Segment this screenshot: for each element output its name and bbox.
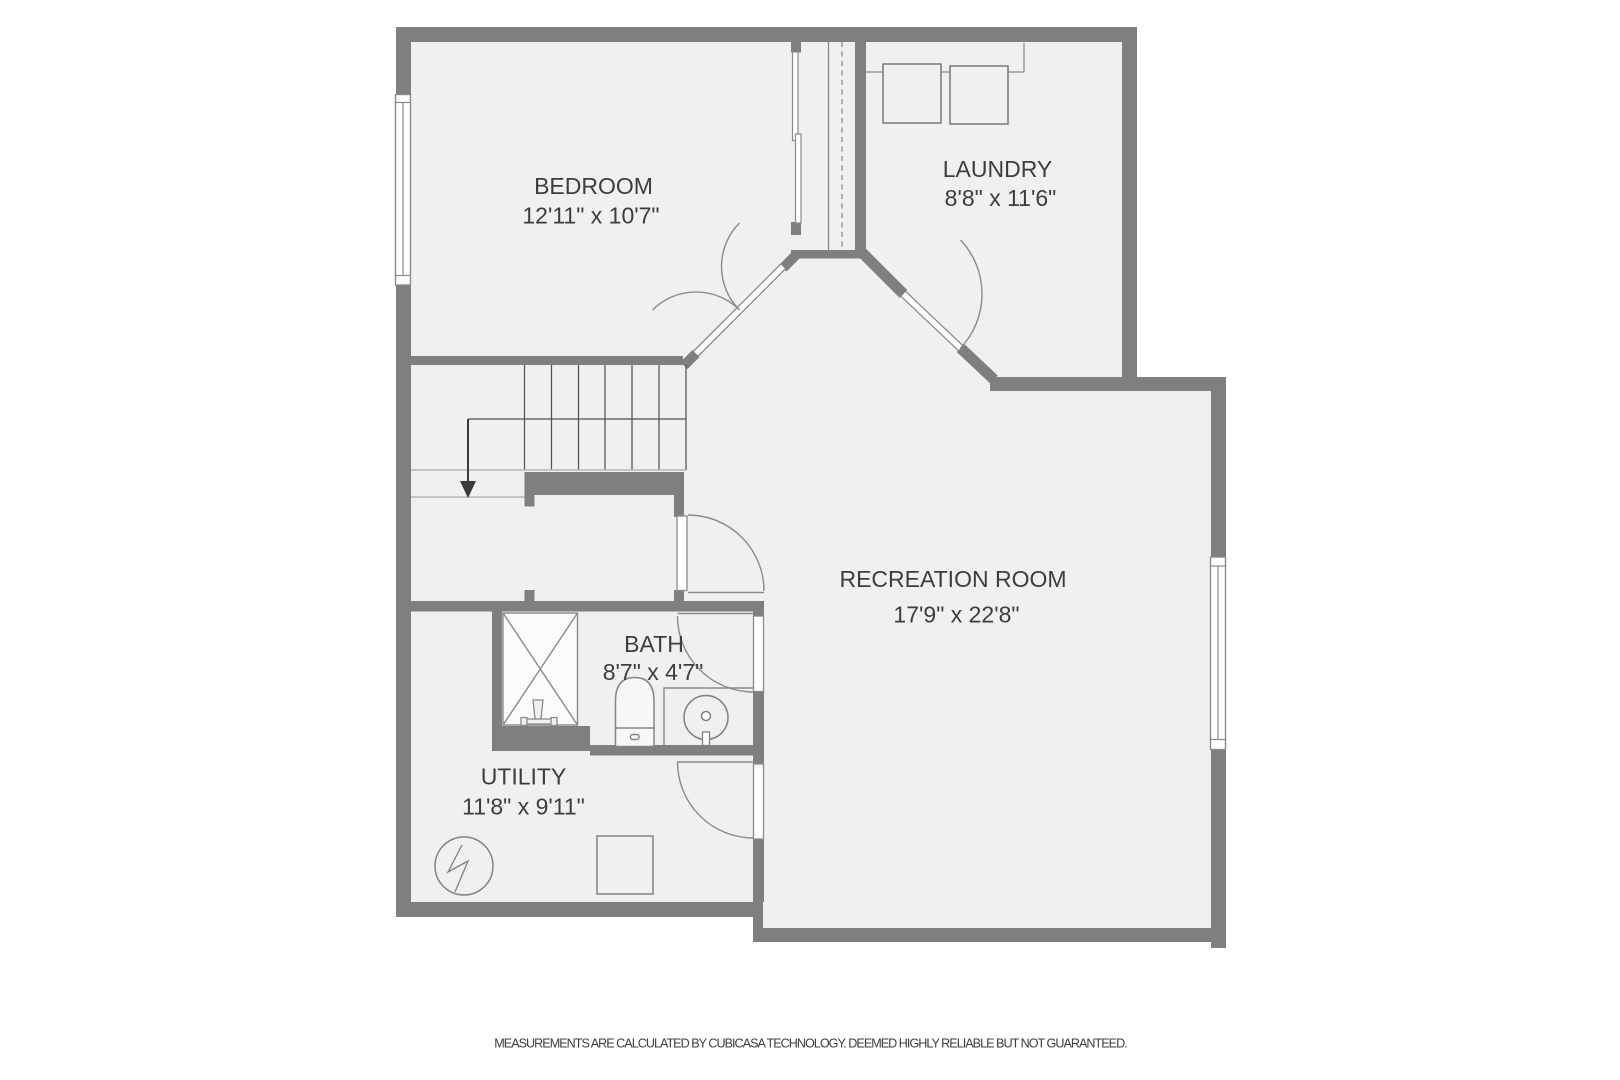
svg-text:8'8" x 11'6": 8'8" x 11'6" (945, 185, 1057, 211)
svg-text:BATH: BATH (624, 631, 684, 657)
svg-text:BEDROOM: BEDROOM (534, 173, 653, 199)
svg-text:8'7" x 4'7": 8'7" x 4'7" (603, 659, 704, 685)
svg-text:RECREATION ROOM: RECREATION ROOM (839, 566, 1066, 592)
svg-text:LAUNDRY: LAUNDRY (943, 156, 1053, 182)
svg-text:MEASUREMENTS ARE CALCULATED BY: MEASUREMENTS ARE CALCULATED BY CUBICASA … (494, 1037, 1127, 1051)
svg-text:UTILITY: UTILITY (481, 764, 567, 790)
svg-text:17'9" x 22'8": 17'9" x 22'8" (893, 602, 1019, 628)
svg-text:12'11" x 10'7": 12'11" x 10'7" (522, 203, 659, 229)
svg-text:11'8" x 9'11": 11'8" x 9'11" (462, 794, 585, 820)
